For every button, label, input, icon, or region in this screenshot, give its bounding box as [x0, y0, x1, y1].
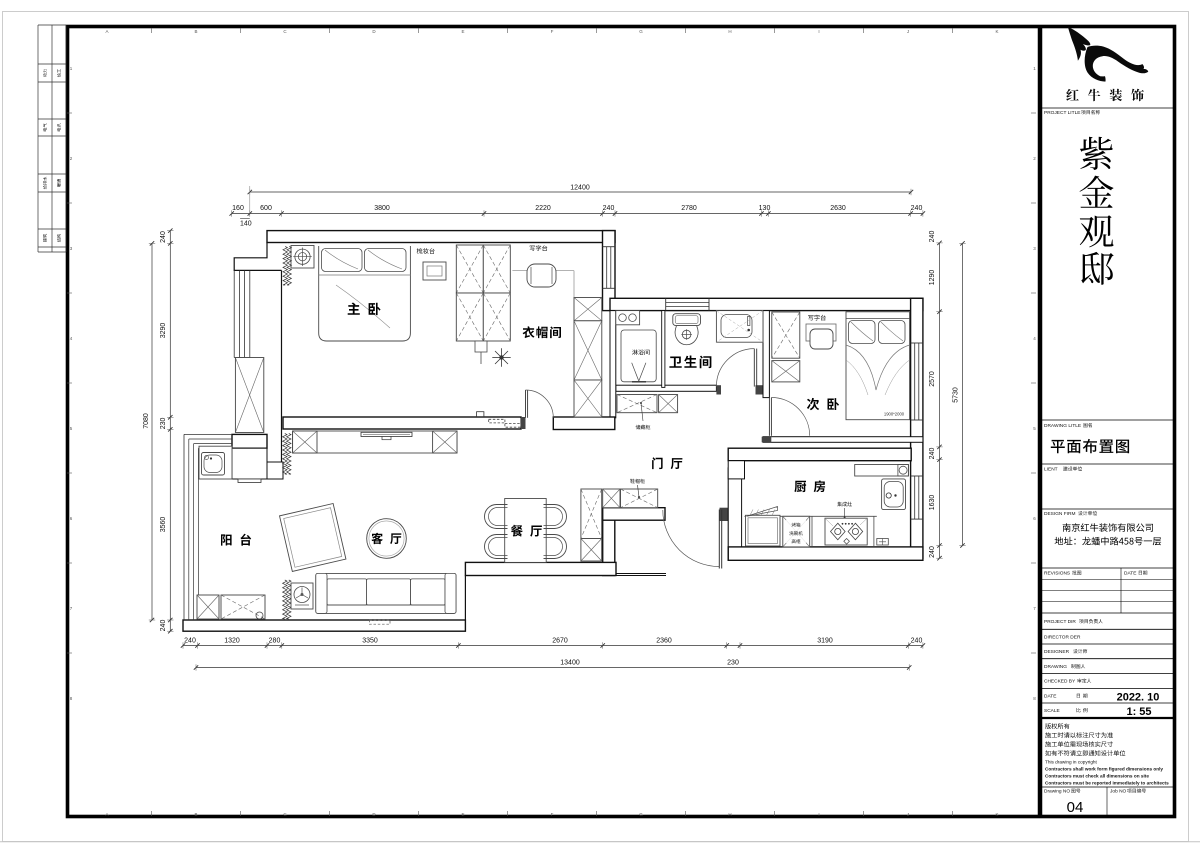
svg-text:3290: 3290: [160, 323, 167, 339]
svg-text:230: 230: [160, 417, 167, 429]
svg-text:240: 240: [929, 448, 936, 460]
svg-text:240: 240: [911, 205, 923, 212]
svg-text:J: J: [907, 29, 909, 34]
svg-text:B: B: [194, 812, 197, 817]
svg-text:7080: 7080: [143, 413, 150, 429]
svg-text:240: 240: [184, 638, 196, 645]
svg-text:600: 600: [260, 205, 272, 212]
svg-text:240: 240: [603, 205, 615, 212]
svg-text:F: F: [551, 812, 554, 817]
svg-text:This drawing in copyright: This drawing in copyright: [1045, 760, 1098, 765]
svg-text:2670: 2670: [552, 638, 568, 645]
svg-text:1900*2000: 1900*2000: [884, 412, 905, 417]
svg-text:DESIGN FIRM: DESIGN FIRM: [1044, 511, 1075, 517]
svg-text:DRAWING LITLE: DRAWING LITLE: [1044, 423, 1081, 429]
svg-text:3800: 3800: [374, 205, 390, 212]
svg-text:Contractors must be reported i: Contractors must be reported immediately…: [1045, 781, 1169, 786]
svg-text:2780: 2780: [681, 205, 697, 212]
svg-text:3560: 3560: [160, 517, 167, 533]
svg-text:1: 55: 1: 55: [1126, 706, 1151, 718]
svg-text:DATE: DATE: [1044, 694, 1056, 700]
svg-text:13400: 13400: [560, 660, 580, 667]
svg-text:230: 230: [727, 660, 739, 667]
svg-text:F: F: [551, 29, 554, 34]
svg-text:REVISIONS: REVISIONS: [1044, 571, 1070, 577]
svg-text:1320: 1320: [224, 638, 240, 645]
svg-text:CHECKED BY: CHECKED BY: [1044, 679, 1076, 685]
svg-text:I: I: [818, 29, 819, 34]
svg-text:240: 240: [911, 638, 923, 645]
svg-text:04: 04: [1067, 799, 1084, 816]
svg-text:E: E: [461, 29, 464, 34]
svg-text:2360: 2360: [656, 638, 672, 645]
svg-text:Drawing NO: Drawing NO: [1044, 789, 1070, 795]
svg-text:3350: 3350: [362, 638, 378, 645]
svg-text:2220: 2220: [535, 205, 551, 212]
svg-text:Job NO: Job NO: [1110, 789, 1127, 795]
svg-text:5730: 5730: [953, 387, 960, 403]
svg-text:240: 240: [160, 231, 167, 243]
svg-text:LIENT: LIENT: [1044, 467, 1058, 473]
svg-text:B: B: [194, 29, 197, 34]
svg-text:PROJECT LITLE: PROJECT LITLE: [1044, 110, 1080, 116]
svg-text:160: 160: [232, 205, 244, 212]
svg-text:I: I: [818, 812, 819, 817]
svg-text:140: 140: [240, 221, 252, 228]
svg-text:2022. 10: 2022. 10: [1117, 692, 1160, 704]
svg-text:Contractors must check all dim: Contractors must check all dimensions on…: [1045, 774, 1149, 779]
svg-text:H: H: [728, 812, 731, 817]
svg-text:K: K: [995, 812, 998, 817]
svg-text:2630: 2630: [830, 205, 846, 212]
svg-text:2570: 2570: [929, 371, 936, 387]
svg-text:K: K: [995, 29, 998, 34]
svg-text:SCALE: SCALE: [1044, 708, 1060, 714]
svg-text:DESIGNER: DESIGNER: [1044, 649, 1070, 655]
svg-text:PROJECT DIR: PROJECT DIR: [1044, 619, 1076, 625]
svg-text:E: E: [461, 812, 464, 817]
svg-text:240: 240: [929, 546, 936, 558]
svg-text:A: A: [105, 812, 108, 817]
svg-text:G: G: [639, 812, 643, 817]
svg-text:1630: 1630: [929, 495, 936, 511]
svg-text:1290: 1290: [929, 270, 936, 286]
svg-text:DIRECTOR DER: DIRECTOR DER: [1044, 635, 1081, 641]
svg-text:J: J: [907, 812, 909, 817]
svg-text:Contractors shall work form fi: Contractors shall work form figured dime…: [1045, 767, 1163, 772]
svg-text:G: G: [639, 29, 643, 34]
svg-text:240: 240: [160, 620, 167, 632]
svg-text:280: 280: [269, 638, 281, 645]
svg-text:12400: 12400: [570, 185, 590, 192]
svg-text:130: 130: [759, 205, 771, 212]
svg-text:H: H: [728, 29, 731, 34]
svg-text:A: A: [105, 29, 108, 34]
svg-text:3190: 3190: [817, 638, 833, 645]
svg-text:240: 240: [929, 231, 936, 243]
svg-text:DATE: DATE: [1124, 571, 1136, 577]
svg-text:DRAWING: DRAWING: [1044, 664, 1067, 670]
